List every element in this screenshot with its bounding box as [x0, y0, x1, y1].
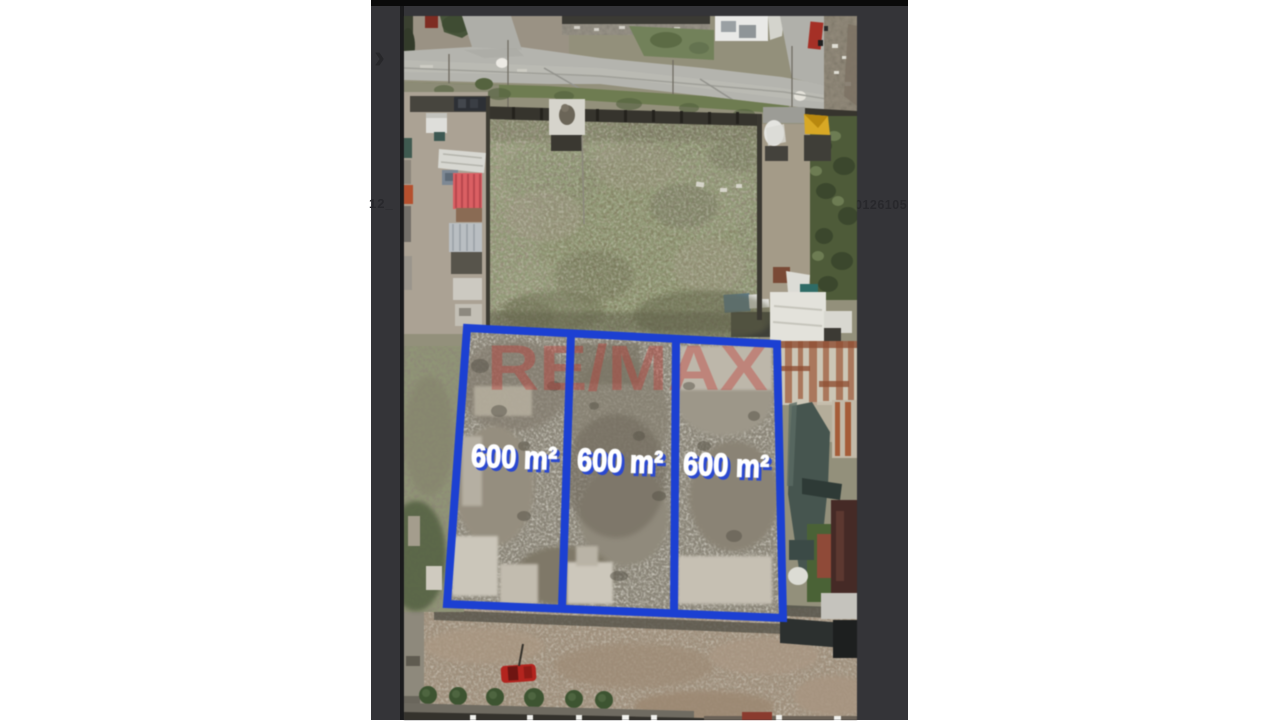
svg-text:600 m²: 600 m² [470, 438, 557, 477]
svg-text:600 m²: 600 m² [682, 446, 769, 485]
svg-text:600 m²: 600 m² [576, 442, 663, 481]
